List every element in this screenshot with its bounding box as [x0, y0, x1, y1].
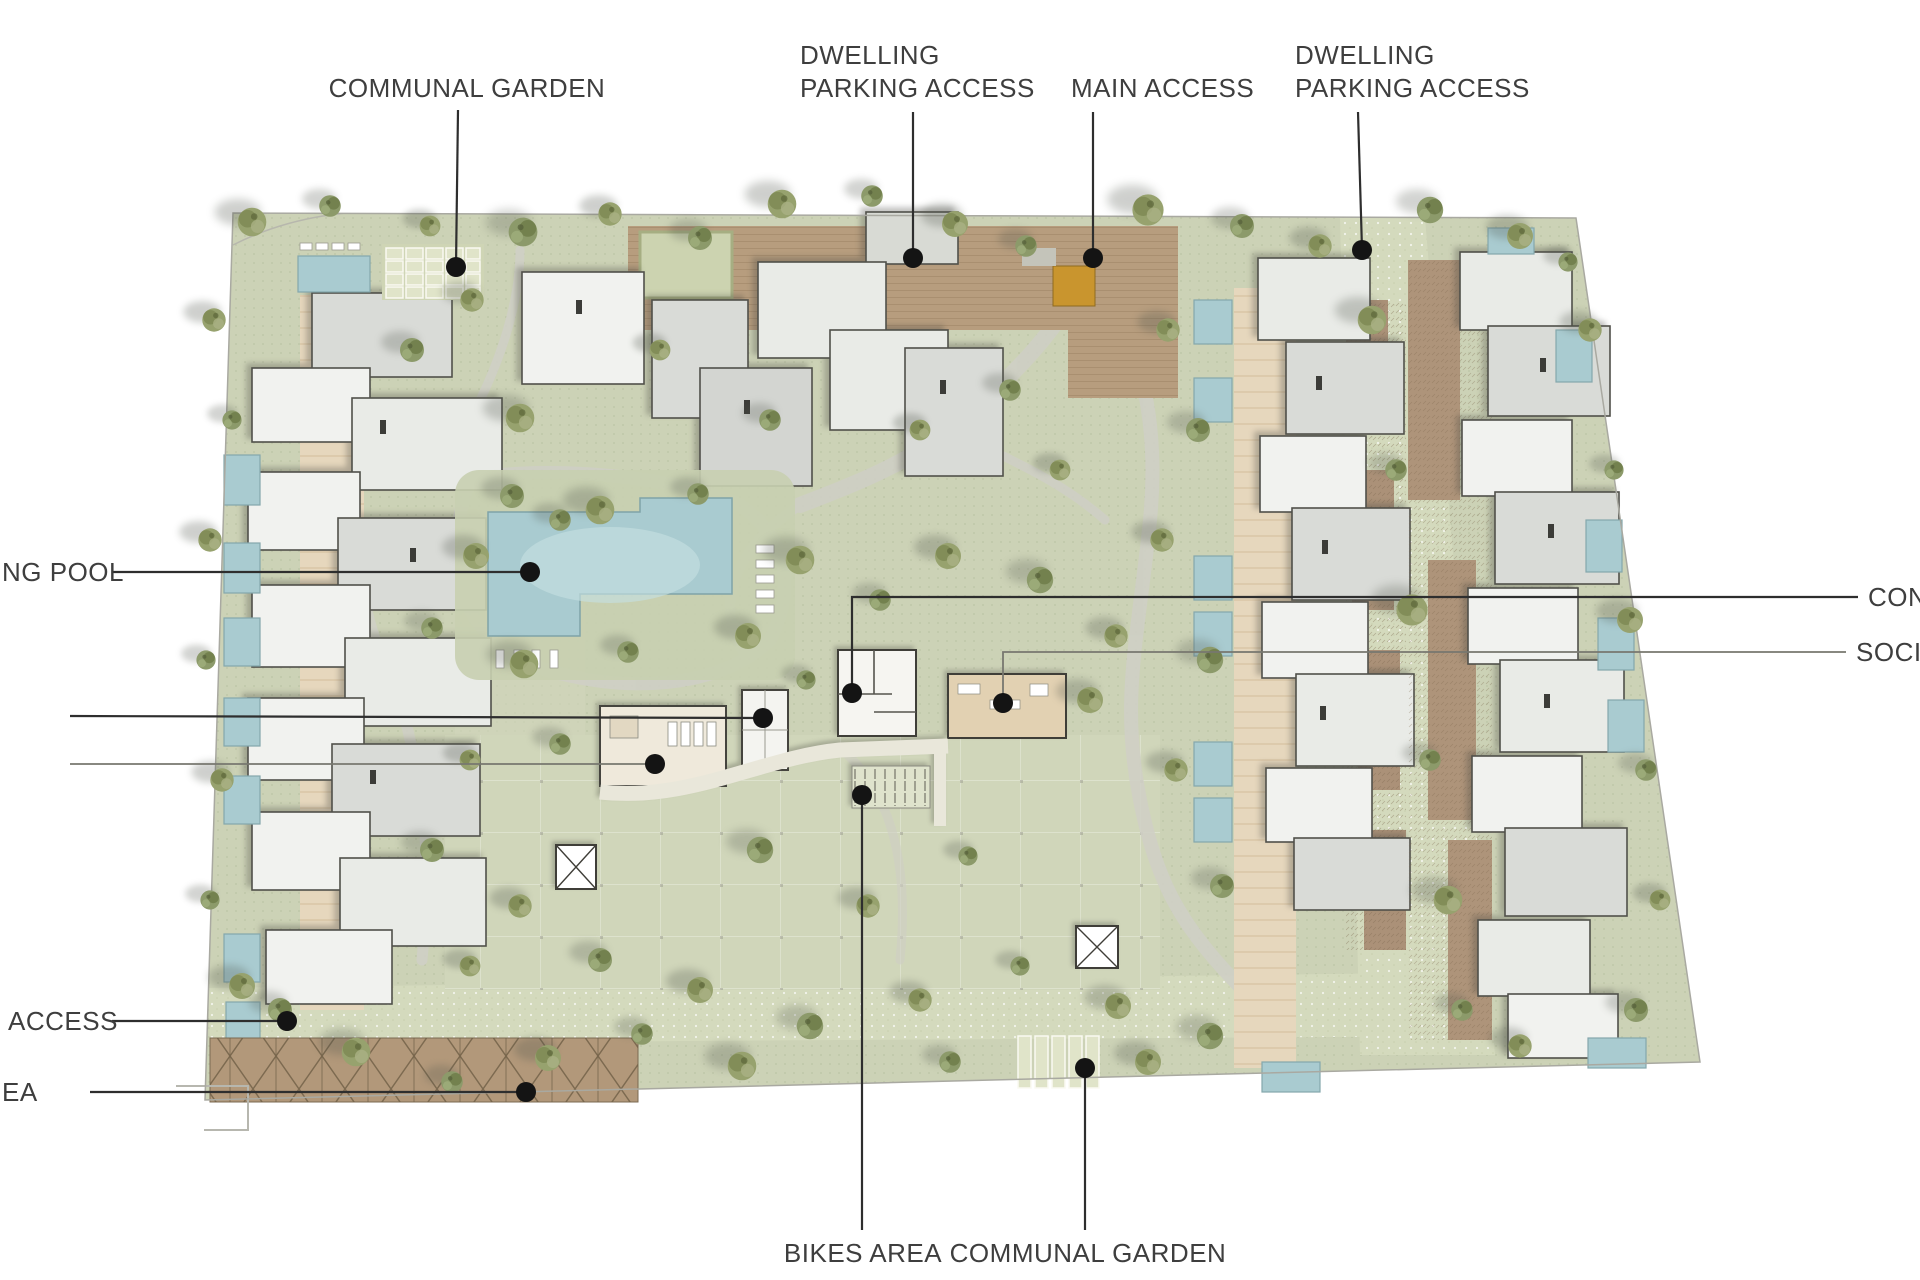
social-leader-dot: [993, 693, 1013, 713]
site-plan-canvas: COMMUNAL GARDENDWELLINGPARKING ACCESSMAI…: [0, 0, 1920, 1280]
dwelling-parking-access-right-label: DWELLINGPARKING ACCESS: [1295, 40, 1530, 103]
social-label: SOCIA: [1856, 637, 1920, 667]
facility-leader-upper-leader-dot: [753, 708, 773, 728]
communal-garden-bottom-label: COMMUNAL GARDEN: [950, 1238, 1227, 1268]
main-entrance-gate: [1053, 266, 1095, 306]
main-access-leader-dot: [1083, 248, 1103, 268]
dwelling-parking-access-left-leader-dot: [903, 248, 923, 268]
access-bottom-left-leader-dot: [277, 1011, 297, 1031]
tree: [844, 179, 883, 207]
communal-garden-bottom-leader-dot: [1075, 1058, 1095, 1078]
communal-garden-top-label: COMMUNAL GARDEN: [329, 73, 606, 103]
concierge-leader-dot: [842, 683, 862, 703]
communal-garden-top-leader-dot: [446, 257, 466, 277]
dwelling-parking-access-left-label: DWELLINGPARKING ACCESS: [800, 40, 1035, 103]
access-bottom-left-label: ACCESS: [8, 1006, 118, 1036]
main-access-label: MAIN ACCESS: [1071, 73, 1254, 103]
top-left-pool: [298, 243, 370, 292]
swimming-pool-label: NG POOL: [2, 557, 124, 587]
hedge-court: [640, 232, 732, 298]
tree: [745, 181, 797, 218]
bikes-area-label: BIKES AREA: [784, 1238, 942, 1268]
swimming-pool-leader-dot: [520, 562, 540, 582]
dwelling-parking-access-right-leader-dot: [1352, 240, 1372, 260]
tree: [179, 521, 221, 552]
tree: [183, 301, 225, 332]
tree: [181, 645, 215, 670]
facility-leader-lower-leader-dot: [645, 754, 665, 774]
area-bottom-left-leader-dot: [516, 1082, 536, 1102]
site-plan-svg: COMMUNAL GARDENDWELLINGPARKING ACCESSMAI…: [0, 0, 1920, 1280]
bikes-area-leader-dot: [852, 785, 872, 805]
area-bottom-left-label: EA: [2, 1077, 38, 1107]
concierge-label: CON: [1868, 582, 1920, 612]
